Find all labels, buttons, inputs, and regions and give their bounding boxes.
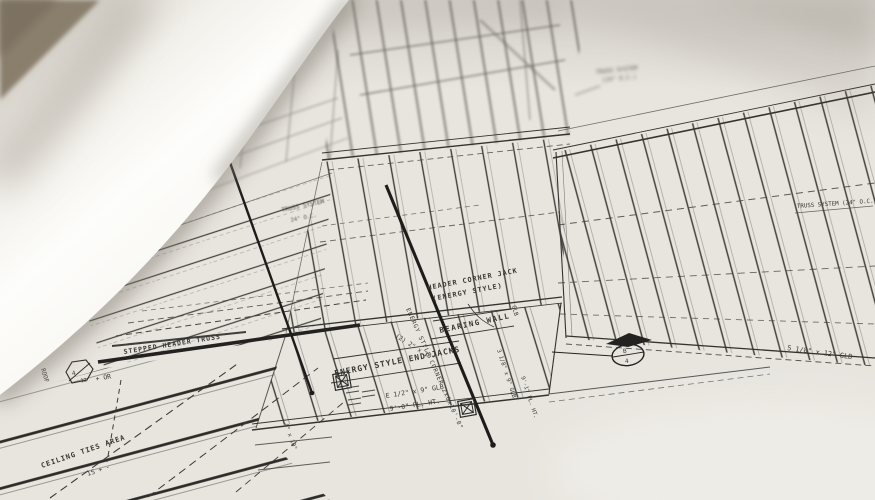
pitch-denominator: 12 — [80, 378, 87, 385]
blueprint-photo-canvas: B 4 4 12 TRUSS SYSTEM (24" O.C.) TRUS — [0, 0, 875, 500]
blueprint-photo: B 4 4 12 TRUSS SYSTEM (24" O.C.) TRUS — [0, 0, 875, 500]
top-center-shadow — [335, 0, 560, 30]
